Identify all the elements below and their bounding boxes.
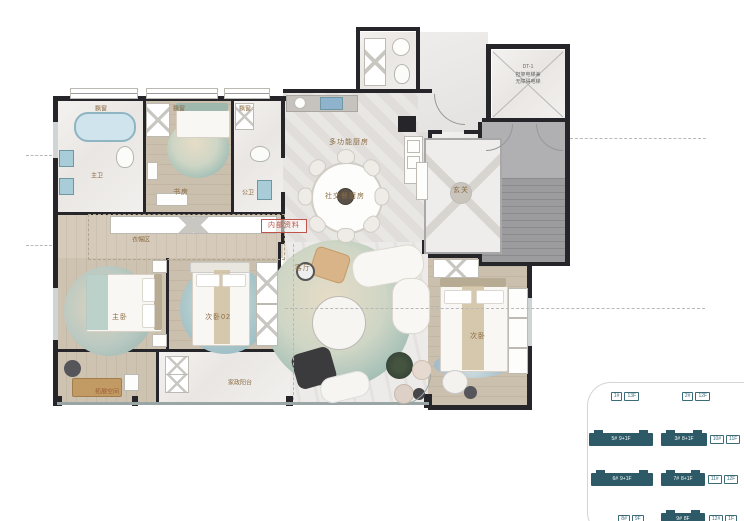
- wall: [486, 44, 491, 122]
- wardrobe: [508, 318, 528, 348]
- pillow: [476, 290, 504, 304]
- room-label-bay-window: 飘窗: [95, 104, 107, 113]
- wardrobe: [146, 103, 170, 137]
- pillow: [196, 274, 220, 287]
- room-label-study: 书房: [173, 187, 189, 197]
- wall: [356, 27, 360, 93]
- toilet: [116, 146, 134, 168]
- pouf: [464, 386, 477, 399]
- room-label-dining: 社交餐厨房: [325, 191, 365, 201]
- site-building: 12#1F: [709, 513, 737, 521]
- site-building: 6#9+1F: [591, 473, 653, 486]
- wall: [416, 27, 420, 93]
- internal-material-stamp: 内部资料: [261, 219, 307, 233]
- console-table: [416, 162, 428, 200]
- site-building: 7#8+1F: [661, 473, 705, 486]
- pillow: [444, 290, 472, 304]
- dining-chair: [298, 188, 313, 206]
- reference-line: [570, 138, 706, 139]
- washer: [165, 356, 189, 375]
- wall: [464, 130, 482, 134]
- site-key-plan: 1#13F2#12F5#9+1F3#8+1F10#11F6#9+1F7#8+1F…: [585, 378, 744, 521]
- bathroom-sink: [59, 150, 74, 167]
- pillow: [142, 278, 155, 302]
- dining-chair: [375, 188, 390, 206]
- wardrobe: [256, 304, 278, 346]
- room-label-bay-window: 飘窗: [239, 104, 251, 113]
- site-building: 11#12F: [709, 473, 737, 486]
- wall: [231, 98, 234, 214]
- bathroom-sink: [59, 178, 74, 195]
- balcony-glazing: [57, 402, 429, 405]
- bathroom-sink: [257, 180, 272, 200]
- room-label-foyer: 玄关: [453, 185, 469, 195]
- nightstand: [152, 260, 167, 273]
- window: [53, 122, 58, 158]
- wall: [281, 96, 285, 158]
- closet-cabinets: [110, 216, 277, 234]
- pouf: [64, 360, 81, 377]
- bay-window: [224, 88, 270, 99]
- site-building: 5#9+1F: [589, 433, 653, 446]
- side-table: [124, 374, 139, 391]
- room-label-public-bath: 公卫: [242, 188, 254, 197]
- elevator-line3: 无障碍电梯: [492, 79, 564, 87]
- wall: [356, 27, 420, 31]
- round-lounge-chair: [312, 296, 366, 350]
- wall-column: [398, 116, 416, 132]
- wall: [428, 405, 532, 410]
- bay-window: [70, 88, 138, 99]
- dryer: [165, 374, 189, 393]
- floor-plan-page: DT-1 担架电梯兼 无障碍电梯: [0, 0, 744, 521]
- room-label-master-bedroom: 主卧: [112, 312, 128, 322]
- site-building: 1#13F: [593, 390, 657, 403]
- shower: [364, 38, 386, 86]
- room-label-bedroom3: 次卧: [470, 331, 486, 341]
- wardrobe: [508, 288, 528, 318]
- closet: [433, 259, 479, 278]
- site-building: 10#11F: [711, 433, 739, 446]
- wall-column: [424, 394, 432, 408]
- room-label-cloakroom: 衣帽区: [132, 235, 150, 244]
- pillow: [142, 304, 155, 328]
- wall: [156, 352, 159, 404]
- cooktop: [320, 97, 343, 110]
- room-label-living: 客厅: [295, 263, 311, 273]
- elevator-line2: 担架电梯兼: [492, 72, 564, 80]
- room-label-bay-window: 飘窗: [173, 104, 185, 113]
- window: [53, 288, 58, 340]
- bathroom-sink: [392, 38, 410, 56]
- site-building: 3#8+1F: [661, 433, 707, 446]
- dining-chair: [337, 228, 355, 243]
- nightstand: [152, 334, 167, 347]
- dimension-tick: [26, 155, 52, 156]
- elevator-label: DT-1 担架电梯兼 无障碍电梯: [492, 64, 564, 87]
- wardrobe: [508, 348, 528, 374]
- desk: [147, 162, 158, 180]
- room-label-kitchen: 多功能厨房: [329, 137, 369, 147]
- room-label-service-balcony: 家政阳台: [228, 378, 252, 387]
- site-building: 8#9F: [607, 513, 655, 521]
- toilet: [250, 146, 270, 162]
- appliance: [407, 140, 420, 153]
- bathtub: [74, 112, 136, 142]
- dining-chair: [337, 149, 355, 164]
- room-label-master-bath: 主卫: [91, 171, 103, 180]
- reference-line: [293, 244, 294, 400]
- bed-runner: [86, 274, 108, 330]
- wall: [428, 130, 442, 134]
- dimension-tick: [26, 245, 52, 246]
- wardrobe: [256, 262, 278, 304]
- study-daybed: [176, 110, 230, 138]
- toilet: [394, 64, 410, 84]
- elevator-line1: DT-1: [492, 64, 564, 72]
- room-label-expansion: 拓展空间: [95, 387, 119, 396]
- sofa-chaise: [392, 278, 430, 334]
- pillow: [222, 274, 246, 287]
- wall: [565, 44, 570, 266]
- kitchen-sink: [294, 97, 306, 109]
- site-building: 2#12F: [667, 390, 725, 403]
- room-label-bedroom2: 次卧02: [205, 312, 231, 322]
- headboard: [154, 274, 162, 330]
- wall: [486, 44, 570, 49]
- bay-window: [146, 88, 218, 99]
- reference-line: [285, 308, 705, 309]
- site-building: 9#8F: [661, 513, 705, 521]
